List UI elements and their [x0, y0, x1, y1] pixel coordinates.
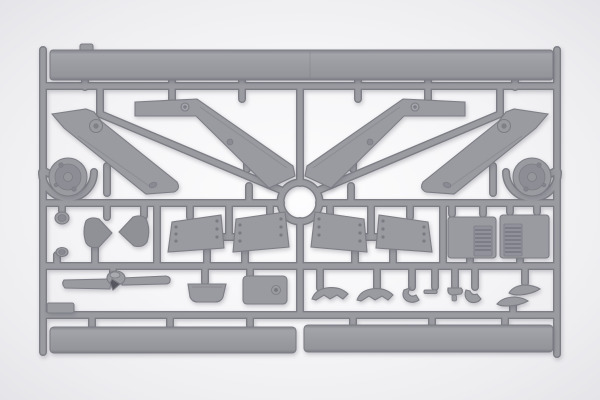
elevator-panel-3 [311, 212, 367, 252]
wheel-right [513, 158, 551, 196]
sprue-photo [0, 0, 600, 400]
bottom-strip-left [50, 327, 296, 353]
elevator-panel-2 [233, 212, 289, 252]
sprue-photo-svg [0, 0, 600, 400]
hub-cap-upper [55, 212, 69, 224]
wheel-left [49, 158, 87, 196]
equipment-box [243, 276, 287, 304]
hub-cap-lower [56, 248, 68, 257]
cowl-tub [188, 284, 226, 302]
radiator-block-1 [448, 217, 496, 258]
bottom-strip-right [304, 325, 553, 352]
step-part [47, 303, 74, 313]
small-strip [424, 290, 437, 294]
top-rail-part [50, 50, 553, 80]
radiator-block-2 [500, 215, 549, 258]
